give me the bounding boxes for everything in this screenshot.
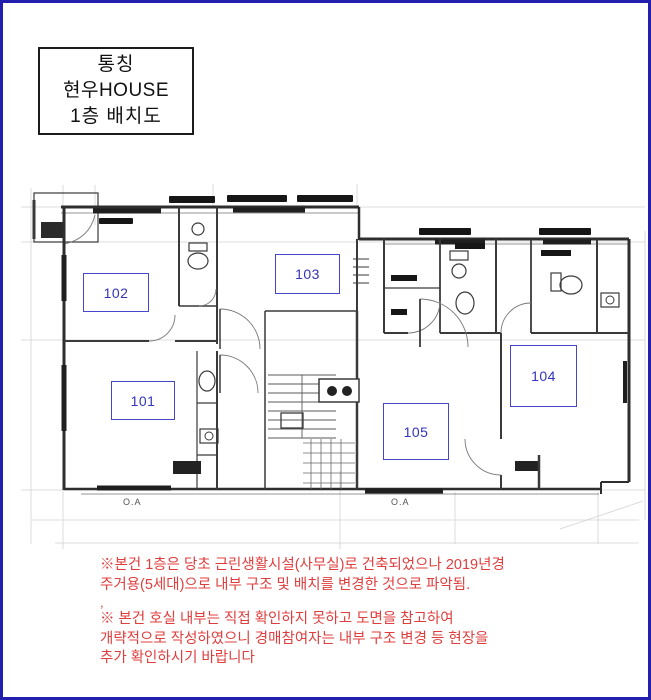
oa-annotation-center: O.A (391, 497, 410, 507)
room-number: 103 (295, 266, 320, 282)
room-number: 101 (131, 393, 156, 409)
room-label-102: 102 (83, 273, 149, 312)
disclaimer-notes: ※본건 1층은 당초 근린생활시설(사무실)로 건축되었으나 2019년경 주거… (100, 556, 580, 669)
note-separator: , (100, 595, 580, 610)
room-label-103: 103 (275, 254, 340, 294)
title-box: 통칭 현우HOUSE 1층 배치도 (38, 47, 194, 135)
room-number: 104 (531, 368, 556, 384)
note-line-5: 추가 확인하시기 바랍니다 (100, 649, 580, 669)
title-line-name: 현우HOUSE (63, 78, 169, 104)
title-line-alias: 통칭 (98, 52, 135, 78)
note-line-3: ※ 본건 호실 내부는 직접 확인하지 못하고 도면을 참고하여 (100, 610, 580, 630)
room-label-104: 104 (510, 345, 577, 407)
oa-annotation-left: O.A (123, 497, 142, 507)
room-number: 105 (404, 424, 429, 440)
room-number: 102 (104, 285, 129, 301)
room-label-101: 101 (111, 381, 175, 420)
room-label-105: 105 (383, 403, 449, 460)
note-line-4: 개략적으로 작성하였으니 경매참여자는 내부 구조 변경 등 현장을 (100, 630, 580, 650)
note-line-1: ※본건 1층은 당초 근린생활시설(사무실)로 건축되었으나 2019년경 (100, 556, 580, 576)
note-line-2: 주거용(5세대)으로 내부 구조 및 배치를 변경한 것으로 파악됨. (100, 576, 580, 596)
document-page: 통칭 현우HOUSE 1층 배치도 102 103 101 105 104 O.… (0, 0, 651, 700)
title-line-floor: 1층 배치도 (70, 104, 162, 130)
